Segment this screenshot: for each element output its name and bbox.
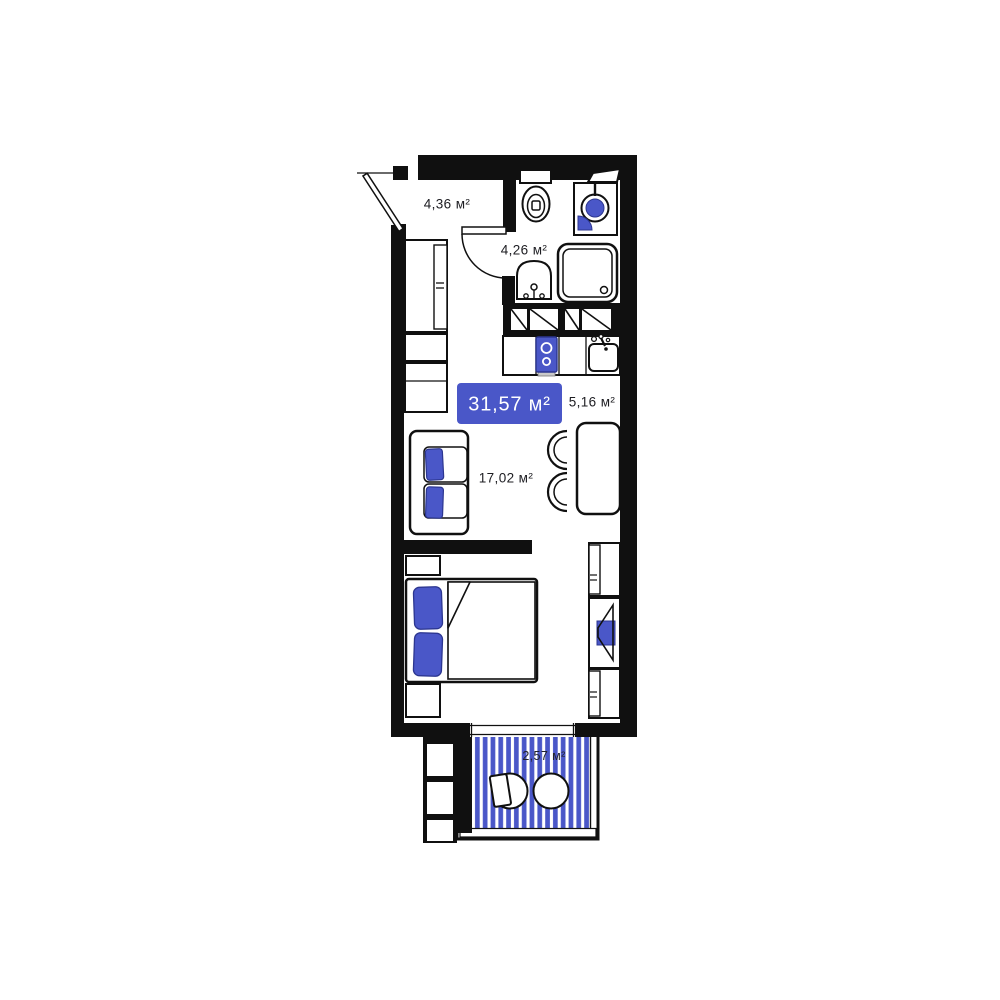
bath-sink-icon [517,261,551,299]
chair-icon [548,431,567,469]
bed-icon [406,579,537,682]
balcony-bottom-rail [460,829,596,838]
shower-icon [558,244,617,302]
dining-table-icon [577,423,620,514]
ladder-rung [427,744,453,776]
vent-shaft [503,303,620,336]
wardrobe-icon [405,240,447,412]
floor-plan-canvas: 2,57 м² [0,0,1000,1000]
wall-left [391,225,404,737]
balcony-window-door [470,723,575,737]
chair-icon [548,473,567,511]
bathroom-door-swing-arc [462,234,506,278]
pillow [413,633,442,677]
wall-right [620,155,637,737]
balcony-side-wall-stub [455,733,472,833]
balcony-area-label: 2,57 м² [522,749,565,763]
balcony: 2,57 м² [423,730,598,843]
cabinet-icon [589,669,620,718]
nightstand-icon [406,684,440,717]
entrance-doorpost-top [393,166,408,180]
sofa-icon [410,431,468,534]
living-area-label: 17,02 м² [479,471,534,486]
wall-room-divider [403,540,532,554]
bathroom-door-icon [462,227,506,278]
bathroom-door-leaf [462,227,506,234]
total-area-label: 31,57 м² [468,394,550,416]
tv-icon [589,598,620,668]
bathroom-area-label: 4,26 м² [501,243,548,258]
stove-icon [536,337,557,376]
entrance-door-leaf [363,173,403,231]
ladder-rung [427,820,453,841]
floor-plan: 2,57 м² [0,0,1000,1000]
hallway-area-label: 4,36 м² [424,197,471,212]
entrance-door-icon [357,173,403,231]
washing-machine-icon [574,183,617,235]
kitchen-area-label: 5,16 м² [569,395,616,410]
balcony-chair-icon [490,774,528,809]
cabinet-icon [589,543,620,596]
wall-bathroom-lower [502,276,515,305]
ladder-icon [423,737,457,843]
wall-bathroom-upper [503,180,516,232]
pillow [413,587,442,630]
toilet-icon [520,170,551,222]
total-area-badge: 31,57 м² [457,383,562,424]
nightstand-icon [406,556,440,575]
balcony-table-icon [534,774,569,809]
ladder-rung [427,782,453,814]
